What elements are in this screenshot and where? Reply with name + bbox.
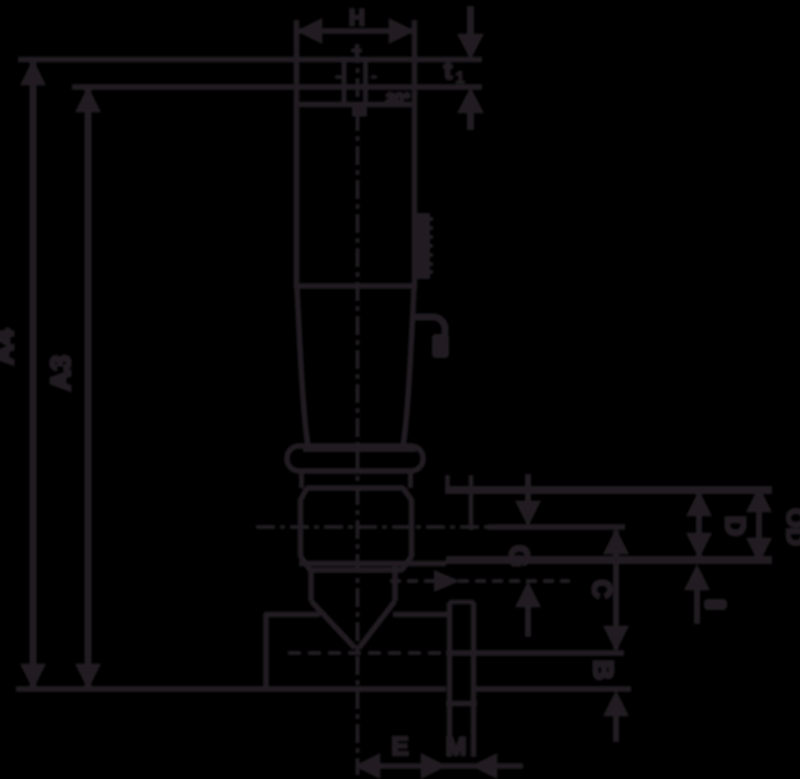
svg-text:C: C [587, 580, 617, 599]
svg-text:30°: 30° [386, 91, 410, 108]
svg-text:B: B [588, 660, 619, 680]
svg-text:t: t [444, 57, 453, 85]
svg-text:H: H [349, 5, 365, 30]
svg-text:G: G [504, 545, 535, 567]
svg-text:A3: A3 [45, 355, 76, 391]
svg-text:E: E [391, 731, 408, 761]
svg-text:M: M [446, 733, 467, 761]
svg-text:1: 1 [455, 68, 464, 87]
svg-text:OD: OD [781, 508, 800, 546]
svg-text:D: D [720, 516, 751, 536]
svg-text:A4: A4 [0, 329, 19, 365]
